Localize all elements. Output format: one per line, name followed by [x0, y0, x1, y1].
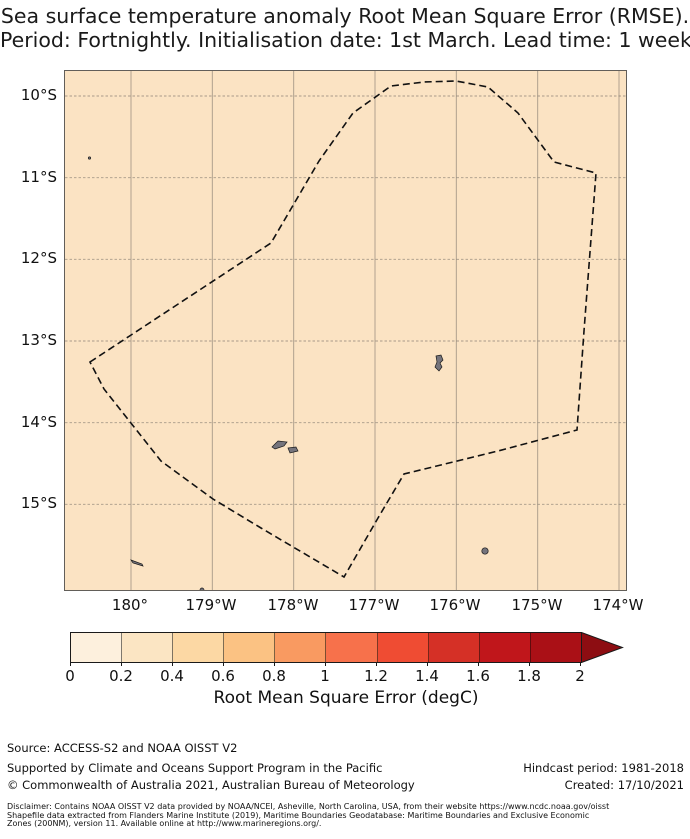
created-date-text: Created: 17/10/2021 [565, 778, 684, 792]
colorbar-tick [478, 662, 479, 666]
y-tick-label-13s: 13°S [0, 331, 57, 349]
source-text: Source: ACCESS-S2 and NOAA OISST V2 [7, 741, 237, 755]
y-tick-label-10s: 10°S [0, 86, 57, 104]
title-line-1: Sea surface temperature anomaly Root Mea… [0, 4, 690, 28]
colorbar-tick [529, 662, 530, 666]
colorbar-tick-label: 0.4 [147, 667, 197, 685]
island-dot-bottom-edge [200, 588, 204, 591]
colorbar-tick-label: 1 [300, 667, 350, 685]
colorbar [70, 632, 582, 663]
eez-boundary-polygon [90, 81, 596, 577]
islands [88, 157, 488, 591]
colorbar-segment [224, 633, 275, 662]
figure-title: Sea surface temperature anomaly Root Mea… [0, 4, 690, 52]
colorbar-tick-label: 1.2 [351, 667, 401, 685]
colorbar-axis-label: Root Mean Square Error (degC) [214, 688, 479, 708]
latitude-gridlines [65, 96, 627, 504]
disclaimer-block: Disclaimer: Contains NOAA OISST V2 data … [7, 803, 690, 829]
x-tick-label-175w: 175°W [497, 596, 577, 614]
colorbar-tick [580, 662, 581, 666]
island-sliver-west-2 [288, 447, 298, 453]
colorbar-segment [122, 633, 173, 662]
colorbar-segment [480, 633, 531, 662]
colorbar-tick [325, 662, 326, 666]
disclaimer-line-1: Disclaimer: Contains NOAA OISST V2 data … [7, 803, 690, 812]
y-tick-label-15s: 15°S [0, 494, 57, 512]
island-dot-southeast [482, 548, 488, 554]
colorbar-tick [376, 662, 377, 666]
island-sliver-west-1 [272, 441, 287, 449]
colorbar-segment [531, 633, 581, 662]
colorbar-tick-label: 0 [45, 667, 95, 685]
colorbar-segment [275, 633, 326, 662]
x-tick-label-180: 180° [90, 596, 170, 614]
colorbar-tick [427, 662, 428, 666]
colorbar-segment [326, 633, 377, 662]
disclaimer-line-3: Zones (200NM), version 11. Available onl… [7, 820, 690, 829]
y-tick-label-14s: 14°S [0, 413, 57, 431]
colorbar-tick-label: 1.8 [504, 667, 554, 685]
figure-root: Sea surface temperature anomaly Root Mea… [0, 0, 690, 839]
colorbar-tick-label: 0.6 [198, 667, 248, 685]
colorbar-tick-label: 1.4 [402, 667, 452, 685]
island-sliver-southwest [131, 560, 143, 566]
x-tick-label-176w: 176°W [415, 596, 495, 614]
colorbar-tick-label: 2 [555, 667, 605, 685]
island-blob-center [435, 355, 443, 371]
colorbar-segment [429, 633, 480, 662]
title-line-2: Period: Fortnightly. Initialisation date… [0, 28, 690, 52]
disclaimer-line-2: Shapefile data extracted from Flanders M… [7, 812, 690, 821]
map-plot-area [64, 70, 627, 591]
island-speck-northwest [88, 157, 90, 159]
colorbar-tick [70, 662, 71, 666]
colorbar-segment [71, 633, 122, 662]
colorbar-tick [172, 662, 173, 666]
colorbar-tick [274, 662, 275, 666]
supported-text: Supported by Climate and Oceans Support … [7, 761, 382, 775]
x-tick-label-179w: 179°W [171, 596, 251, 614]
y-tick-label-12s: 12°S [0, 249, 57, 267]
colorbar-tick [121, 662, 122, 666]
x-tick-label-177w: 177°W [334, 596, 414, 614]
x-tick-label-174w: 174°W [578, 596, 658, 614]
y-tick-label-11s: 11°S [0, 168, 57, 186]
colorbar-extend-arrow [581, 632, 624, 663]
copyright-text: © Commonwealth of Australia 2021, Austra… [7, 778, 415, 792]
colorbar-segment [378, 633, 429, 662]
hindcast-period-text: Hindcast period: 1981-2018 [523, 761, 684, 775]
colorbar-tick-label: 1.6 [453, 667, 503, 685]
colorbar-tick [223, 662, 224, 666]
colorbar-tick-label: 0.8 [249, 667, 299, 685]
colorbar-segment [173, 633, 224, 662]
colorbar-tick-label: 0.2 [96, 667, 146, 685]
x-tick-label-178w: 178°W [253, 596, 333, 614]
map-canvas [65, 71, 627, 591]
longitude-gridlines [131, 71, 619, 591]
